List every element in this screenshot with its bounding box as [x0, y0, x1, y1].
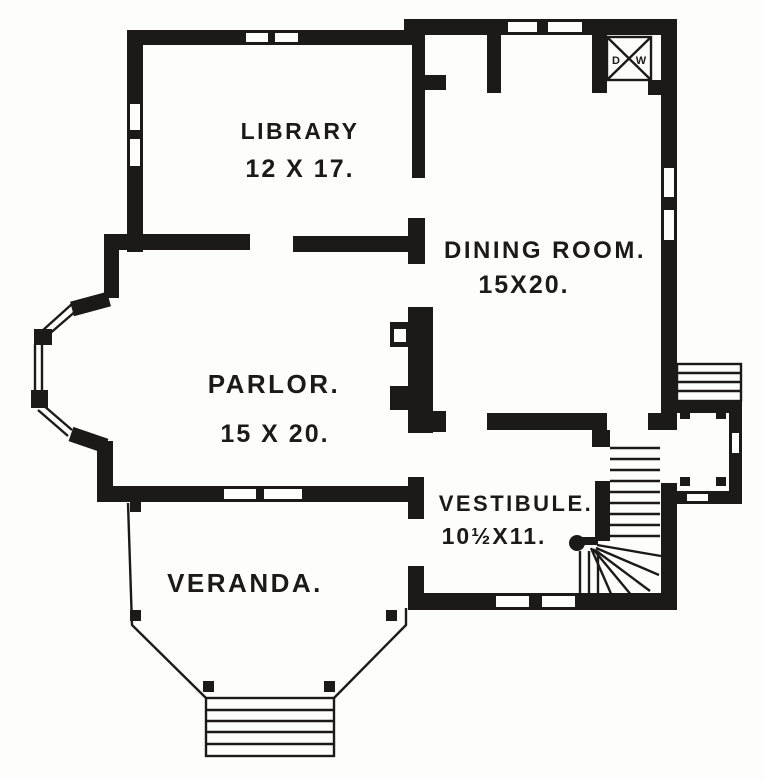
stair-treads: [610, 448, 660, 536]
veranda-post: [203, 681, 214, 692]
chimney-stub-right: [433, 411, 446, 432]
pantry-partition-a: [487, 35, 501, 93]
porch-jamb: [680, 477, 690, 486]
windows: [127, 19, 677, 610]
porch-jamb: [716, 477, 726, 486]
porch-door-gap: [687, 491, 708, 504]
veranda-steps: [206, 698, 334, 756]
library-dims: 12 X 17.: [245, 155, 354, 183]
veranda-post: [324, 681, 335, 692]
veranda-outline-right: [334, 608, 406, 698]
main-staircase: [569, 448, 661, 596]
dining-top-window: [508, 19, 582, 35]
interior-walls: [110, 25, 677, 541]
parlor-south-window: [224, 486, 302, 502]
stair-winders: [591, 545, 661, 596]
dumbwaiter-stub: [648, 80, 677, 95]
partition-library-parlor-right: [293, 236, 410, 252]
veranda: [128, 501, 406, 756]
dumbwaiter-box: D W: [607, 37, 651, 80]
stair-stub-top: [592, 430, 610, 447]
dining-room-dims: 15X20.: [478, 271, 569, 299]
veranda-outline-left: [128, 503, 206, 698]
floor-plan-drawing: D W LIBRARY 12 X 17. DINING ROOM. 15X20.…: [0, 0, 764, 780]
partition-dining-vestibule: [487, 413, 607, 430]
dining-east-window: [661, 168, 677, 240]
bay-pier-upper: [34, 329, 52, 345]
chimney-flue: [394, 329, 406, 342]
parlor-label: PARLOR.: [208, 369, 341, 399]
library-label: LIBRARY: [241, 118, 360, 144]
east-porch-stub: [648, 413, 662, 430]
dumbwaiter-letter-w: W: [636, 55, 647, 67]
library-top-window: [246, 30, 298, 45]
exterior-walls: [97, 19, 677, 610]
wall-library-east: [412, 25, 425, 178]
dining-room-label: DINING ROOM.: [444, 237, 646, 264]
vestibule-south-window: [496, 593, 575, 610]
vestibule-dims: 10½X11.: [442, 523, 547, 549]
veranda-label: VERANDA.: [167, 568, 323, 598]
bay-pier-lower: [31, 390, 48, 408]
bay-window: [31, 299, 109, 446]
wall-library-east-stub: [425, 75, 446, 90]
library-left-window: [127, 104, 143, 166]
partition-library-parlor-left: [110, 234, 250, 250]
side-steps: [677, 364, 741, 401]
porch-window: [729, 433, 742, 453]
chimney-pier: [390, 307, 446, 433]
wall-vestibule-west-lower: [408, 566, 424, 610]
chimney-main: [408, 307, 433, 433]
room-labels: LIBRARY 12 X 17. DINING ROOM. 15X20. PAR…: [167, 118, 646, 598]
porch-jamb: [680, 410, 690, 419]
chimney-stub-lower-left: [390, 386, 408, 410]
partition-tee-head: [408, 218, 425, 264]
veranda-post: [130, 501, 141, 512]
parlor-dims: 15 X 20.: [220, 420, 329, 448]
stair-newel-stem: [577, 537, 598, 545]
veranda-post: [130, 610, 141, 621]
pantry-partition-b: [592, 35, 607, 93]
porch-jamb: [716, 410, 726, 419]
veranda-post: [386, 610, 397, 621]
stair-well-wall: [595, 481, 610, 541]
dumbwaiter-letter-d: D: [612, 55, 620, 67]
floor-plan: D W LIBRARY 12 X 17. DINING ROOM. 15X20.…: [0, 0, 764, 780]
wall-vestibule-west-stub: [408, 477, 424, 519]
vestibule-label: VESTIBULE.: [439, 491, 594, 516]
